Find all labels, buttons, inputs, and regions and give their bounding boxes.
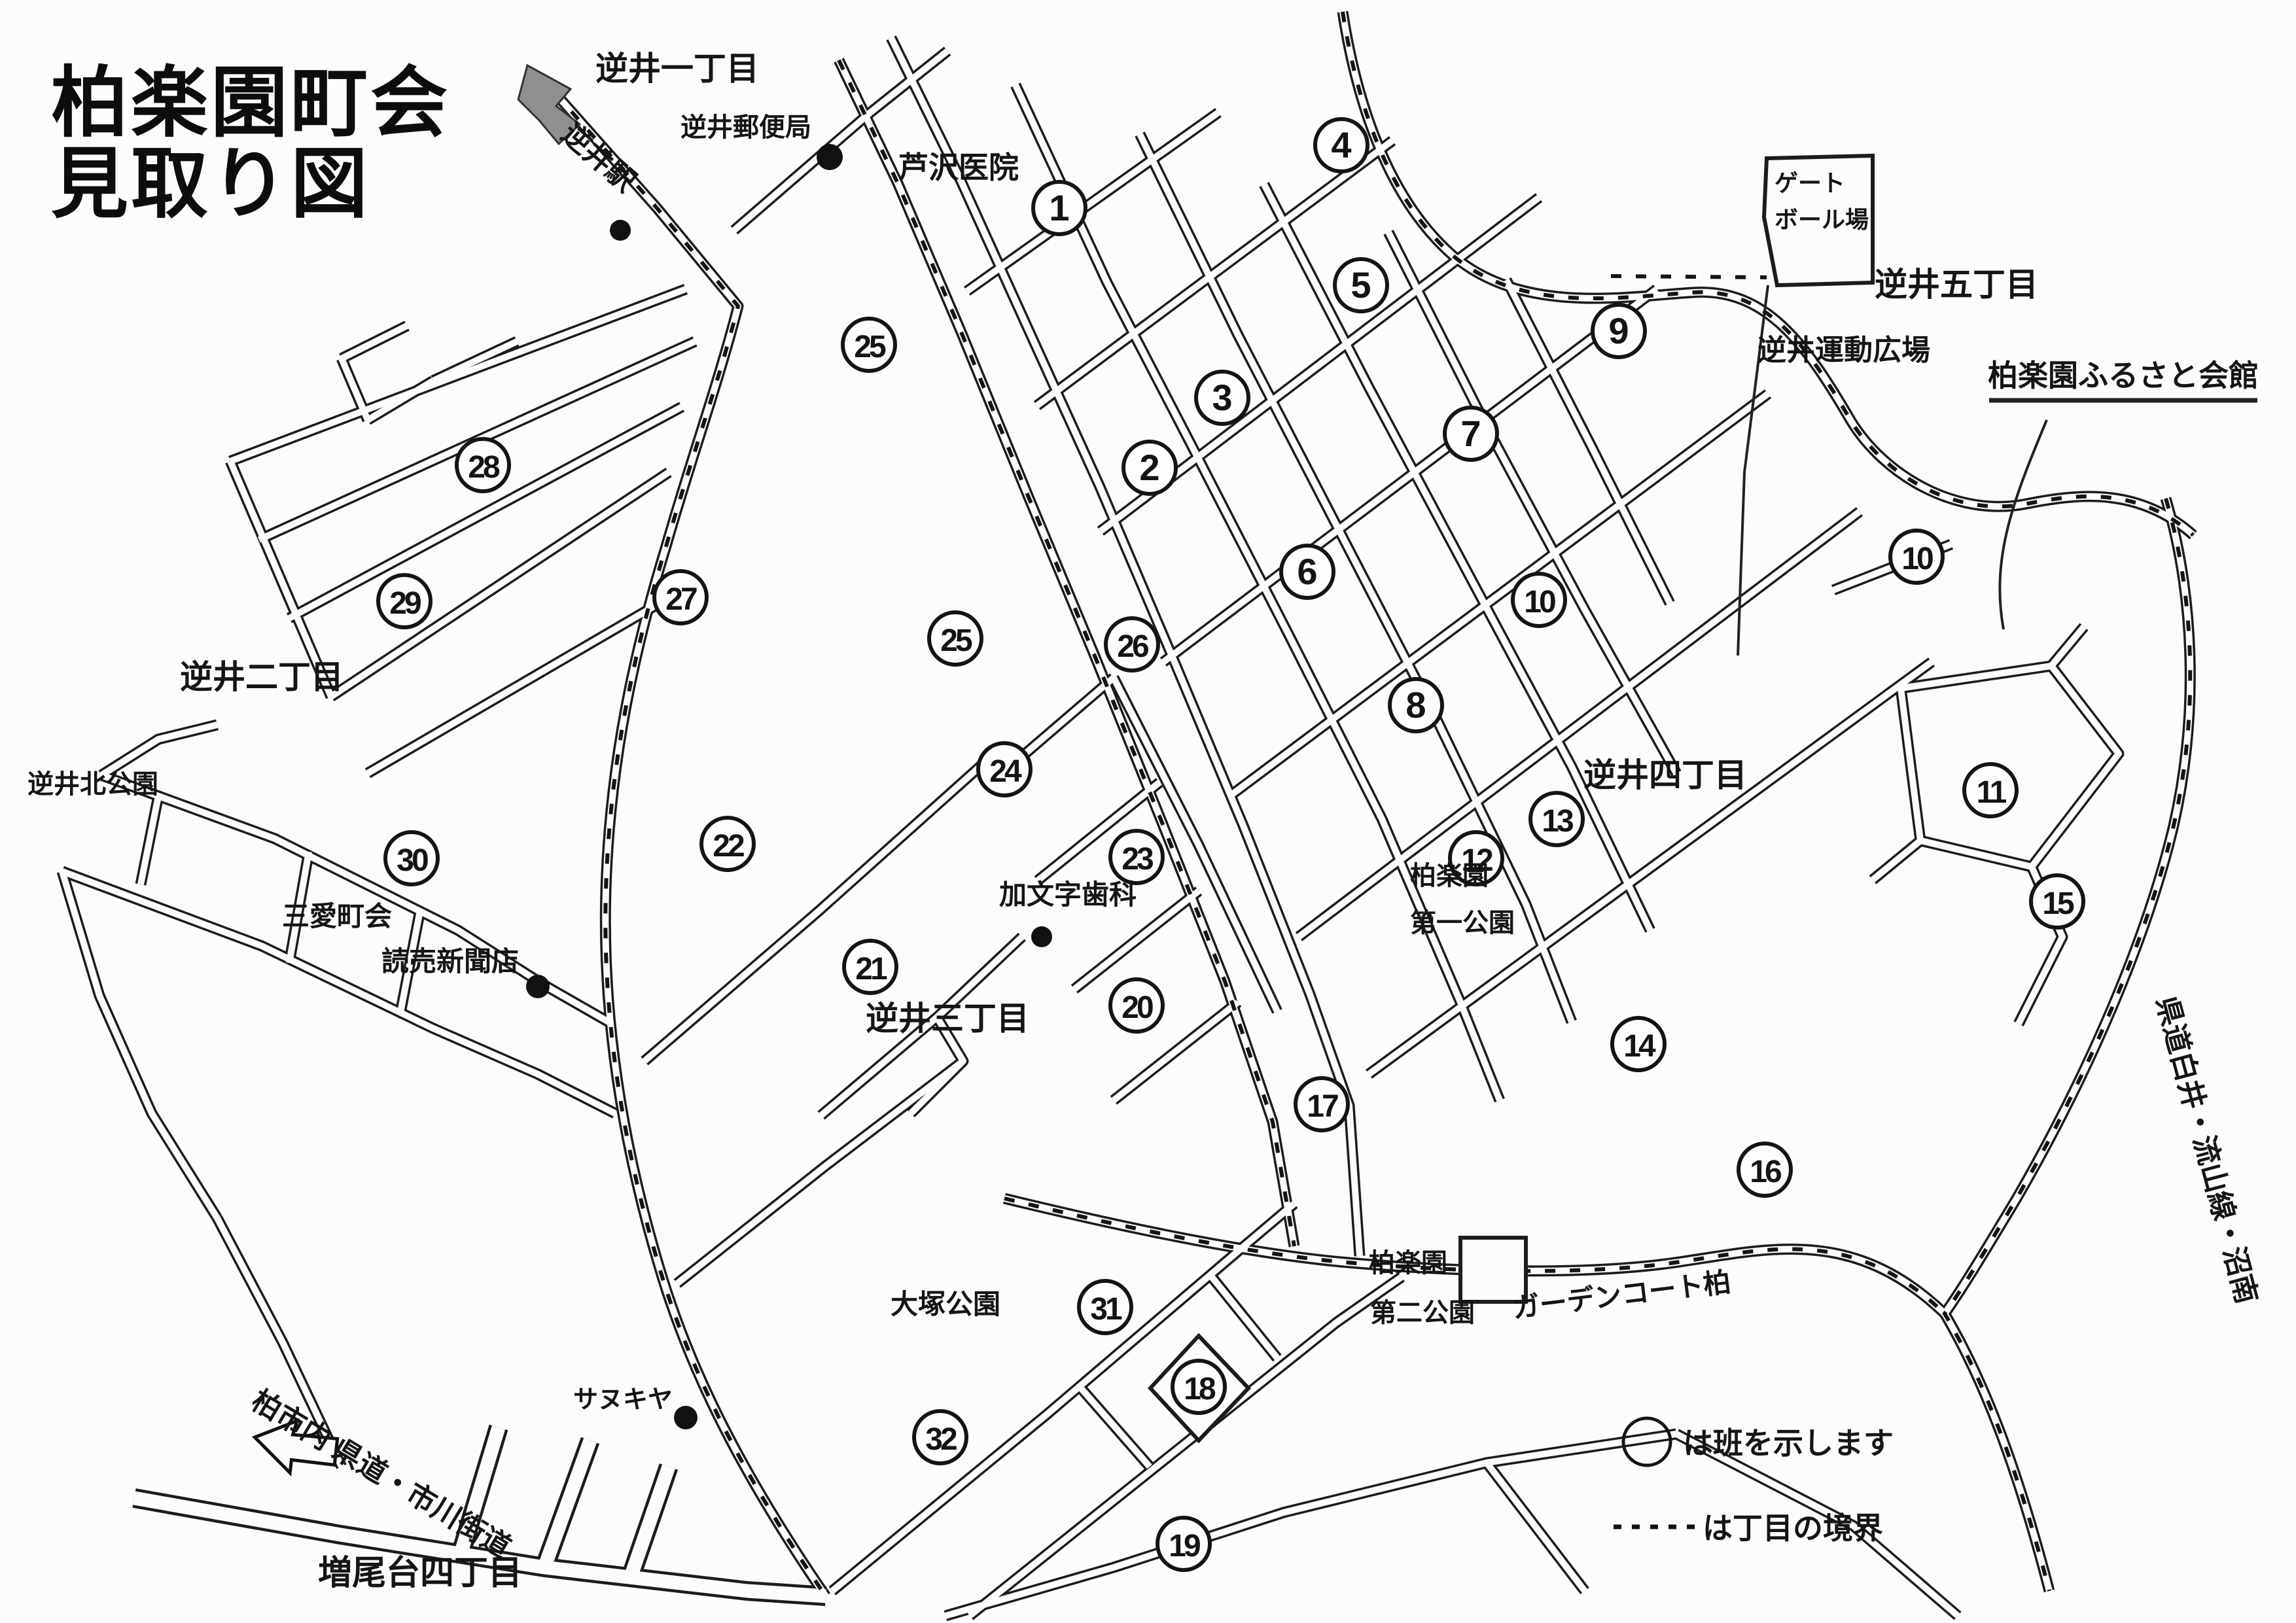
label-dai1-koen-a: 柏楽園 — [1410, 862, 1489, 890]
han-badge-30: 30 — [385, 832, 438, 884]
label-sakasai-yubinkyoku: 逆井郵便局 — [680, 113, 811, 142]
han-badge-number: 4 — [1331, 124, 1351, 166]
road-surface-23 — [1873, 841, 1920, 880]
map-title-block: 柏楽園町会 見取り図 — [51, 60, 450, 228]
han-badge-31: 31 — [1079, 1281, 1131, 1333]
han-badge-6: 6 — [1281, 546, 1333, 598]
han-badge-number: 14 — [1623, 1029, 1656, 1064]
han-badge-9: 9 — [1593, 305, 1645, 357]
label-sakasai-1chome: 逆井一丁目 — [595, 50, 759, 87]
label-sakasai-3chome: 逆井三丁目 — [866, 1000, 1029, 1037]
han-badge-number: 25 — [940, 623, 972, 658]
label-kendo-shiroi: 県道白井・流山線・沼南 — [2150, 993, 2263, 1307]
han-badge-26: 26 — [1106, 618, 1158, 671]
han-badge-number: 15 — [2042, 886, 2074, 921]
map-title-line1: 柏楽園町会 — [51, 60, 450, 147]
han-badge-number: 20 — [1122, 990, 1153, 1025]
label-yomiuri: 読売新聞店 — [381, 946, 519, 977]
label-dai1-koen-b: 第一公園 — [1410, 909, 1515, 937]
poi-dots — [526, 144, 1052, 1429]
han-badge-23: 23 — [1110, 831, 1163, 883]
label-ashizawa-iin: 芦沢医院 — [898, 150, 1019, 184]
legend-han-label: は班を示します — [1683, 1426, 1894, 1460]
label-sakasai-eki: 逆井駅 — [556, 117, 642, 198]
station-dot — [610, 220, 631, 241]
han-badge-number: 32 — [925, 1422, 957, 1457]
han-badge-number: 1 — [1049, 187, 1069, 228]
han-badge-19: 19 — [1157, 1518, 1210, 1570]
label-sakasai-5chome: 逆井五丁目 — [1875, 266, 2038, 303]
han-badge-14: 14 — [1612, 1018, 1665, 1070]
han-badge-number: 16 — [1750, 1155, 1781, 1189]
han-badge-5: 5 — [1335, 259, 1387, 311]
han-badge-27: 27 — [654, 571, 707, 623]
map-labels: 逆井一丁目逆井郵便局芦沢医院逆井駅逆井五丁目ゲートボール場逆井運動広場柏楽園ふる… — [27, 50, 2263, 1592]
han-badge-number: 17 — [1307, 1089, 1338, 1124]
han-badge-1: 1 — [1033, 182, 1086, 234]
wide-road-surface-2 — [544, 1440, 590, 1567]
han-badge-17: 17 — [1296, 1078, 1348, 1130]
road-surface-3 — [1945, 498, 2190, 1591]
han-badge-21: 21 — [844, 941, 896, 993]
road-surface-57 — [1487, 1463, 1585, 1591]
han-badge-32: 32 — [914, 1411, 966, 1463]
road-surface-1 — [839, 60, 1294, 1246]
han-badge-number: 10 — [1901, 542, 1933, 576]
han-badge-20: 20 — [1110, 979, 1163, 1032]
label-gateball-2: ボール場 — [1775, 206, 1869, 233]
road-surface-44 — [677, 1061, 963, 1283]
label-sanai-chokai: 三愛町会 — [282, 901, 392, 932]
boundary-dots-3 — [1945, 498, 2190, 1591]
han-badge-13: 13 — [1530, 793, 1583, 845]
han-badge-3: 3 — [1196, 372, 1248, 424]
han-badge-number: 2 — [1139, 447, 1159, 488]
han-badge-2: 2 — [1123, 442, 1176, 494]
han-badge-number: 22 — [713, 829, 744, 864]
label-dai2-koen-b: 第二公園 — [1370, 1299, 1475, 1327]
label-gateball-1: ゲート — [1775, 169, 1845, 196]
legend-boundary-label: は丁目の境界 — [1703, 1511, 1883, 1545]
han-badge-number: 11 — [1977, 775, 2007, 810]
han-badge-10: 10 — [1513, 574, 1565, 626]
road-surface-39 — [101, 725, 217, 775]
han-badge-25: 25 — [929, 612, 981, 665]
label-dai2-koen-a: 柏楽園 — [1369, 1249, 1447, 1278]
han-badge-number: 28 — [468, 450, 500, 485]
han-badge-number: 30 — [397, 843, 428, 878]
label-sakasai-2chome: 逆井二丁目 — [180, 659, 344, 695]
map-canvas: 1234567891010111213141516171819202122232… — [0, 0, 2296, 1623]
han-badge-4: 4 — [1315, 119, 1368, 171]
label-kita-koen: 逆井北公園 — [27, 770, 158, 799]
boundary-dots-5 — [1611, 276, 1767, 277]
han-badge-10: 10 — [1890, 531, 1943, 583]
road-surface-21 — [2051, 627, 2084, 666]
han-badge-11: 11 — [1964, 764, 2017, 816]
road-casing-55 — [945, 1434, 1676, 1616]
label-undo-hiroba: 逆井運動広場 — [1757, 334, 1930, 366]
label-otsuka-koen: 大塚公園 — [891, 1289, 1000, 1319]
han-badge-15: 15 — [2031, 875, 2083, 928]
road-casing-20 — [1901, 666, 2119, 867]
han-badge-number: 6 — [1297, 551, 1317, 592]
road-surface-53 — [1081, 1388, 1150, 1467]
road-surface-20 — [1901, 666, 2119, 867]
han-badge-number: 24 — [989, 754, 1022, 789]
sanukiya-dot — [674, 1406, 698, 1429]
han-badge-number: 27 — [665, 582, 697, 617]
han-badge-18: 18 — [1173, 1361, 1225, 1413]
arrow-symbols — [249, 65, 580, 1482]
map-page: 1234567891010111213141516171819202122232… — [0, 0, 2296, 1623]
han-badge-24: 24 — [978, 743, 1031, 795]
han-badge-16: 16 — [1739, 1143, 1791, 1196]
label-masuodai-4chome: 増尾台四丁目 — [318, 1554, 522, 1592]
han-badge-number: 5 — [1351, 264, 1371, 305]
wide-road-surface-3 — [629, 1467, 669, 1580]
han-badge-number: 29 — [389, 586, 421, 621]
road-casing-3 — [1945, 498, 2190, 1591]
han-badge-number: 21 — [855, 952, 887, 986]
han-badge-22: 22 — [701, 818, 754, 870]
label-kamonji-shika: 加文字歯科 — [999, 879, 1137, 910]
han-badge-28: 28 — [457, 439, 509, 491]
kaikan-leader-line — [2000, 420, 2047, 629]
boundary-dots-1 — [839, 60, 1294, 1246]
han-badge-number: 10 — [1524, 585, 1555, 620]
han-badge-number: 8 — [1405, 684, 1426, 725]
road-casing-1 — [839, 60, 1294, 1246]
post-office-dot — [817, 144, 843, 170]
han-badge-29: 29 — [378, 575, 431, 627]
han-badge-7: 7 — [1445, 408, 1497, 460]
han-badge-number: 7 — [1460, 413, 1481, 454]
han-badge-number: 3 — [1212, 377, 1232, 418]
han-badge-number: 31 — [1090, 1292, 1122, 1327]
yomiuri-dot — [526, 975, 550, 998]
map-title-line2: 見取り図 — [51, 141, 370, 228]
han-badge-number: 25 — [854, 330, 886, 364]
road-surface-30 — [342, 326, 407, 358]
han-badge-number: 9 — [1608, 310, 1629, 351]
kamonji-dot — [1031, 926, 1052, 947]
han-badge-number: 23 — [1122, 842, 1153, 877]
road-surface-36 — [141, 796, 158, 884]
road-surface-54 — [1212, 1277, 1277, 1358]
han-badge-8: 8 — [1390, 679, 1442, 731]
label-sanukiya: サヌキヤ — [573, 1386, 673, 1414]
han-badge-25: 25 — [843, 319, 895, 371]
label-furusato-kaikan: 柏楽園ふるさと会館 — [1988, 358, 2259, 393]
label-sakasai-4chome: 逆井四丁目 — [1583, 757, 1747, 794]
han-badge-number: 19 — [1169, 1529, 1200, 1563]
han-badge-number: 18 — [1184, 1372, 1216, 1406]
han-badge-number: 13 — [1542, 804, 1573, 839]
road-surface-12 — [1299, 512, 1860, 937]
han-badge-number: 26 — [1117, 629, 1148, 664]
